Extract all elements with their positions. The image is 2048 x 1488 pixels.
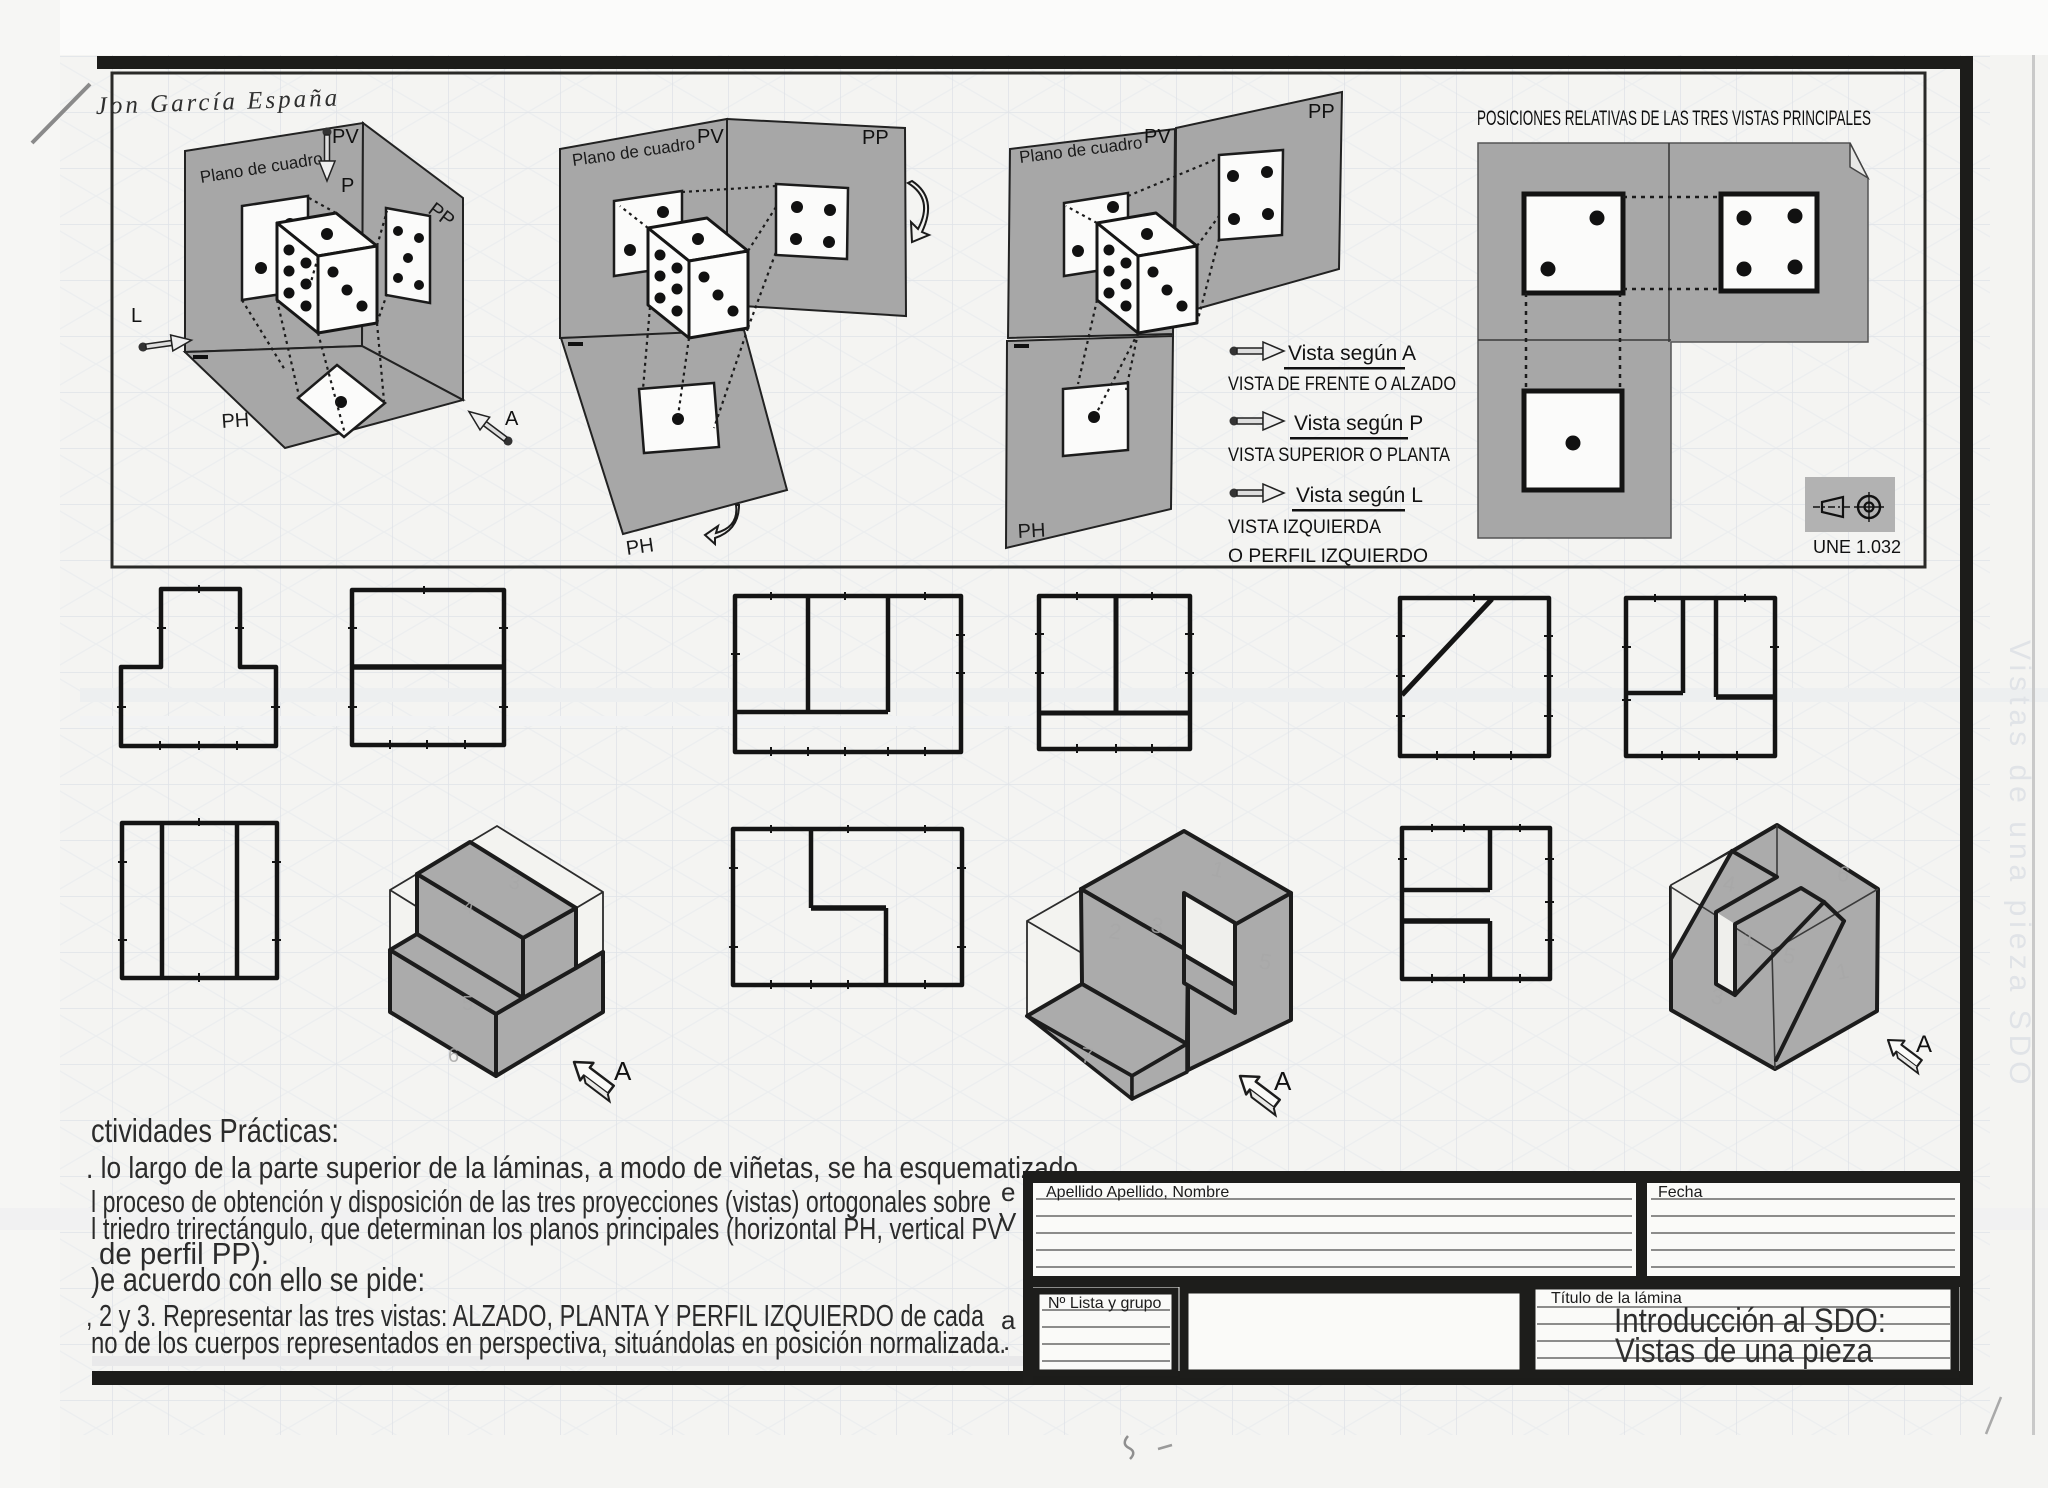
svg-text:6: 6 [448, 1045, 459, 1067]
svg-text:PV: PV [697, 126, 724, 148]
svg-text:UNE 1.032: UNE 1.032 [1813, 537, 1901, 557]
svg-text:PH: PH [221, 409, 250, 433]
svg-text:e: e [1001, 1177, 1015, 1207]
svg-text:no de los cuerpos representado: no de los cuerpos representados en persp… [91, 1325, 1006, 1360]
svg-text:ctividades Prácticas:: ctividades Prácticas: [91, 1112, 339, 1149]
svg-text:A: A [1916, 1031, 1932, 1058]
svg-text:PP: PP [1308, 101, 1335, 123]
svg-text:PH: PH [625, 534, 656, 560]
svg-text:Nº Lista y grupo: Nº Lista y grupo [1048, 1295, 1162, 1312]
svg-text:Vistas de una pieza SDO: Vistas de una pieza SDO [2003, 640, 2036, 1090]
svg-text:Vista según L: Vista según L [1296, 484, 1423, 507]
svg-text:O PERFIL IZQUIERDO: O PERFIL IZQUIERDO [1228, 546, 1428, 567]
svg-text:PP: PP [862, 127, 889, 149]
svg-text:VISTA IZQUIERDA: VISTA IZQUIERDA [1228, 517, 1381, 538]
svg-text:VISTA DE FRENTE O ALZADO: VISTA DE FRENTE O ALZADO [1228, 374, 1456, 395]
svg-text:PH: PH [1017, 520, 1046, 543]
svg-text:A: A [614, 1056, 632, 1086]
svg-text:Fecha: Fecha [1658, 1184, 1703, 1201]
svg-text:V: V [999, 1207, 1017, 1237]
svg-text:VISTA SUPERIOR O PLANTA: VISTA SUPERIOR O PLANTA [1228, 445, 1450, 466]
svg-text:Vistas de una pieza: Vistas de una pieza [1615, 1332, 1873, 1370]
svg-text:Vista según P: Vista según P [1294, 412, 1423, 435]
svg-text:. lo largo de la parte superio: . lo largo de la parte superior de la lá… [86, 1150, 1078, 1185]
svg-text:L: L [131, 305, 142, 327]
svg-text:5: 5 [462, 993, 473, 1015]
svg-text:POSICIONES RELATIVAS DE LAS TR: POSICIONES RELATIVAS DE LAS TRES VISTAS … [1477, 107, 1871, 130]
svg-text:)e acuerdo con ello se pide:: )e acuerdo con ello se pide: [91, 1261, 425, 1298]
svg-text:PV: PV [332, 126, 359, 148]
svg-text:A: A [505, 408, 519, 430]
svg-text:A: A [1274, 1066, 1292, 1096]
svg-text:Apellido Apellido, Nombre: Apellido Apellido, Nombre [1046, 1184, 1229, 1201]
svg-text:PV: PV [1144, 126, 1171, 148]
svg-text:P: P [341, 175, 354, 197]
svg-text:Vista según A: Vista según A [1288, 342, 1416, 365]
svg-text:.: . [1003, 1326, 1010, 1356]
